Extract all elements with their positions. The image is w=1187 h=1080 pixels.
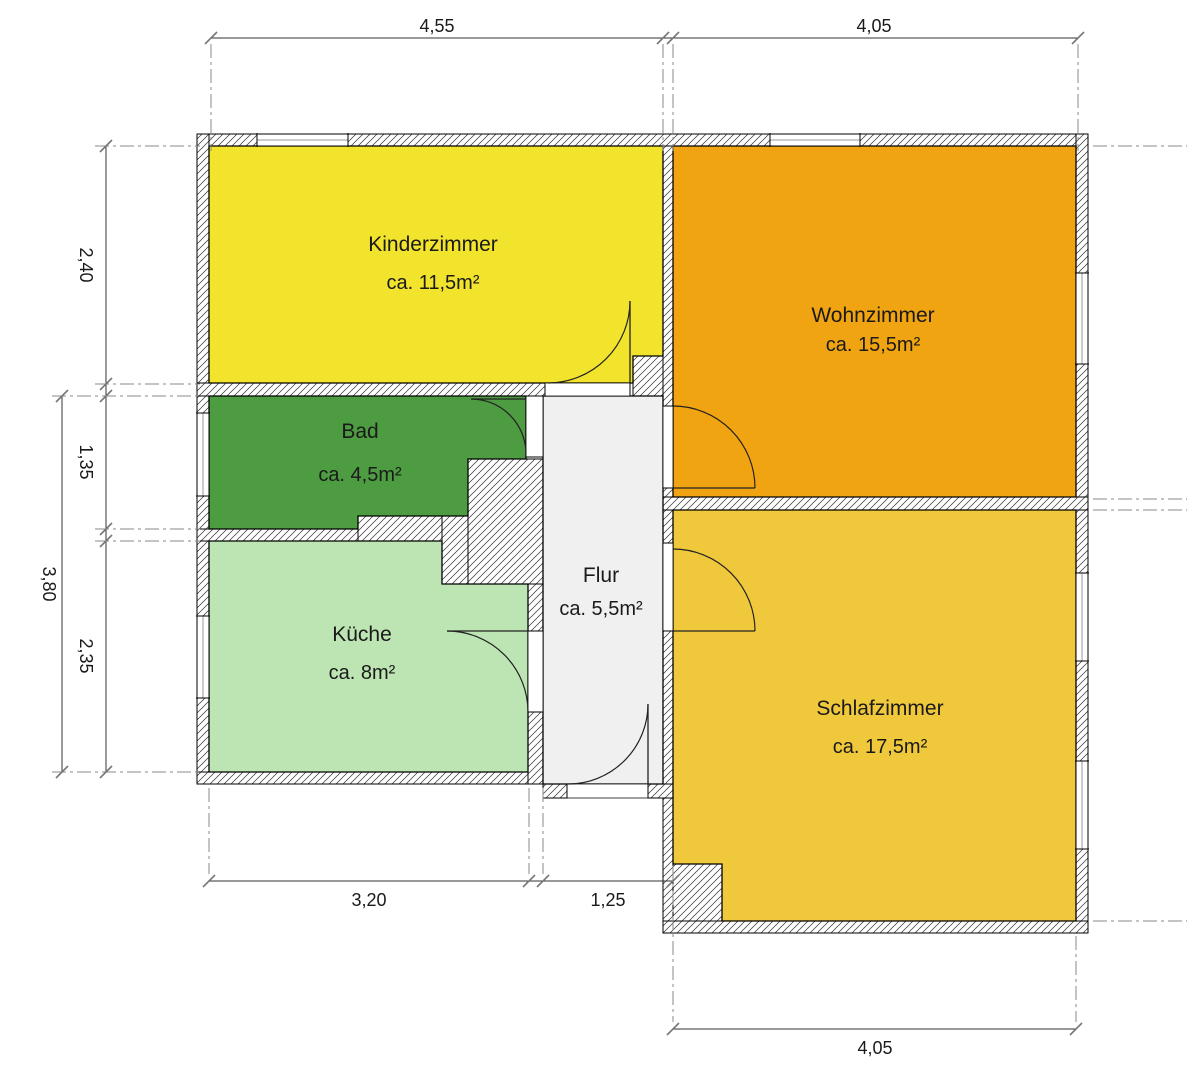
room-area-wohnzimmer: ca. 15,5m²: [826, 334, 921, 356]
door-opening: [528, 631, 543, 712]
wall-segment: [663, 497, 1088, 510]
dimension-label: 2,35: [76, 638, 96, 673]
door-opening: [526, 396, 543, 457]
room-label-kinderzimmer: Kinderzimmer: [368, 233, 498, 256]
wall-segment: [197, 529, 358, 541]
window-icon: [196, 616, 210, 698]
window-icon: [1075, 761, 1089, 849]
door-opening: [663, 543, 673, 631]
room-area-bad: ca. 4,5m²: [318, 464, 402, 486]
room-label-wohnzimmer: Wohnzimmer: [811, 304, 934, 327]
wall-segment: [663, 631, 673, 933]
window-icon: [257, 133, 348, 147]
wall-segment: [197, 383, 545, 396]
wall-segment: [528, 712, 543, 784]
window-icon: [1075, 273, 1089, 364]
wall-segment: [468, 459, 543, 584]
room-kinderzimmer: [209, 146, 663, 383]
dimension-label: 4,05: [857, 1038, 892, 1058]
room-area-kueche: ca. 8m²: [329, 662, 396, 684]
wall-segment: [673, 864, 722, 921]
door-opening: [567, 784, 648, 798]
dimension-label: 4,05: [856, 16, 891, 36]
door-opening: [545, 383, 630, 396]
window-icon: [1075, 573, 1089, 661]
dimension-label: 3,20: [351, 890, 386, 910]
dimension-label: 1,25: [590, 890, 625, 910]
dimension-label: 2,40: [76, 247, 96, 282]
window-icon: [196, 413, 210, 496]
room-label-flur: Flur: [583, 564, 619, 587]
wall-segment: [663, 488, 673, 543]
wall-segment: [648, 784, 673, 798]
wall-segment: [197, 772, 543, 784]
window-icon: [770, 133, 860, 147]
door-opening: [663, 406, 673, 488]
wall-segment: [543, 784, 567, 798]
wall-segment: [442, 516, 468, 584]
room-label-kueche: Küche: [332, 623, 392, 646]
dimension-label: 4,55: [419, 16, 454, 36]
dimension-label: 3,80: [40, 566, 59, 601]
wall-segment: [663, 921, 1088, 933]
wall-segment: [358, 516, 442, 541]
wall-segment: [663, 146, 673, 406]
room-area-schlafzimmer: ca. 17,5m²: [833, 736, 928, 758]
room-area-flur: ca. 5,5m²: [559, 598, 643, 620]
floor-plan-svg: 4,554,053,201,254,052,401,352,353,803,55…: [40, 16, 1187, 1064]
room-area-kinderzimmer: ca. 11,5m²: [387, 272, 480, 294]
dimension-label: 1,35: [76, 444, 96, 479]
floor-plan: 4,554,053,201,254,052,401,352,353,803,55…: [40, 16, 1187, 1064]
room-label-schlafzimmer: Schlafzimmer: [816, 697, 943, 720]
room-label-bad: Bad: [341, 420, 378, 443]
wall-segment: [528, 584, 543, 631]
